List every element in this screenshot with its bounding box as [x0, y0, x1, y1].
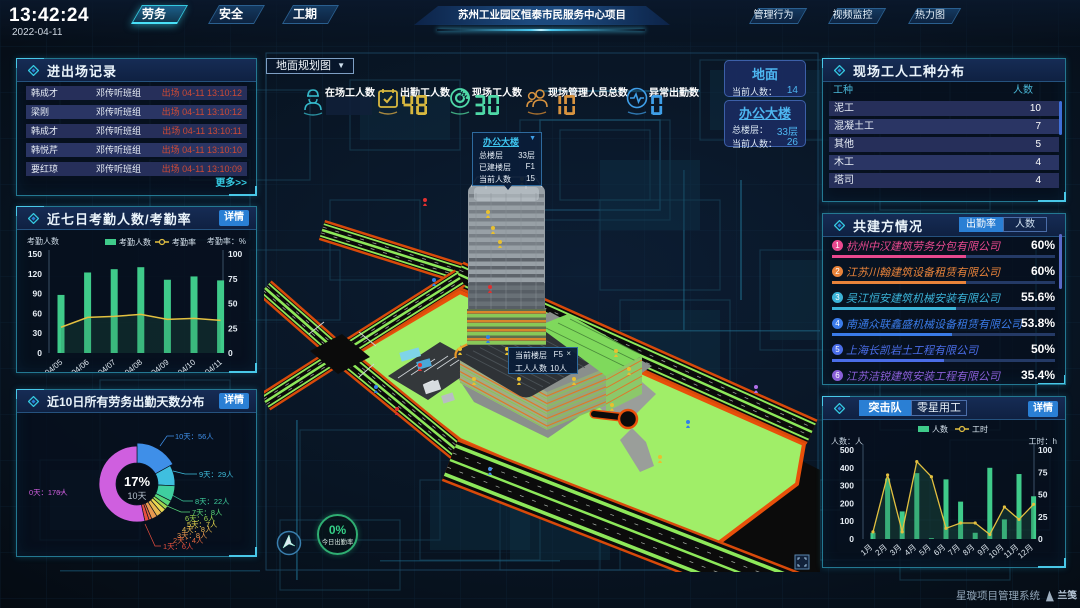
svg-text:300: 300	[840, 481, 854, 491]
svg-text:10天: 10天	[127, 491, 146, 501]
svg-text:考勤率: 考勤率	[172, 237, 196, 247]
svg-text:04/11: 04/11	[203, 357, 224, 372]
svg-text:25: 25	[228, 323, 238, 333]
svg-text:兰笺: 兰笺	[1057, 589, 1077, 602]
svg-text:4月: 4月	[903, 543, 918, 558]
svg-text:考勤人数: 考勤人数	[27, 236, 59, 246]
svg-text:400: 400	[840, 463, 854, 473]
svg-text:120: 120	[28, 269, 42, 279]
svg-text:500: 500	[840, 445, 854, 455]
svg-text:3月: 3月	[888, 543, 903, 558]
svg-text:100: 100	[228, 249, 242, 259]
svg-text:人数: 人数	[932, 424, 948, 434]
svg-text:04/06: 04/06	[70, 357, 92, 372]
svg-text:04/07: 04/07	[96, 357, 118, 372]
svg-text:75: 75	[228, 274, 238, 284]
svg-text:8天：22人: 8天：22人	[195, 497, 230, 506]
svg-text:30: 30	[33, 328, 43, 338]
svg-text:04/08: 04/08	[123, 357, 145, 372]
svg-text:0: 0	[228, 348, 233, 358]
svg-text:5月: 5月	[917, 543, 932, 558]
svg-text:工时: 工时	[972, 424, 988, 434]
svg-text:7月: 7月	[947, 543, 962, 558]
svg-text:150: 150	[28, 249, 42, 259]
svg-text:04/10: 04/10	[176, 357, 198, 372]
svg-text:17%: 17%	[124, 474, 150, 489]
svg-text:75: 75	[1038, 467, 1048, 477]
svg-text:考勤率：%: 考勤率：%	[207, 236, 246, 246]
svg-text:0: 0	[1038, 534, 1043, 544]
svg-text:04/09: 04/09	[150, 357, 172, 372]
svg-text:0: 0	[849, 534, 854, 544]
svg-text:6月: 6月	[932, 543, 947, 558]
svg-text:12月: 12月	[1016, 543, 1035, 561]
svg-text:50: 50	[1038, 490, 1048, 500]
svg-text:100: 100	[840, 516, 854, 526]
svg-text:200: 200	[840, 498, 854, 508]
svg-text:0: 0	[37, 348, 42, 358]
svg-text:2月: 2月	[874, 543, 889, 558]
svg-text:04/05: 04/05	[43, 357, 65, 372]
svg-text:100: 100	[1038, 445, 1052, 455]
svg-text:50: 50	[228, 299, 238, 309]
svg-text:9天：29人: 9天：29人	[199, 470, 234, 479]
svg-text:0天：176人: 0天：176人	[29, 488, 68, 497]
svg-text:1月: 1月	[859, 543, 874, 558]
svg-text:1天：6人: 1天：6人	[163, 542, 194, 551]
svg-text:10天：56人: 10天：56人	[175, 432, 214, 441]
svg-text:90: 90	[33, 289, 43, 299]
svg-text:考勤人数: 考勤人数	[119, 237, 151, 247]
svg-text:60: 60	[33, 308, 43, 318]
svg-text:25: 25	[1038, 512, 1048, 522]
svg-text:8月: 8月	[961, 543, 976, 558]
